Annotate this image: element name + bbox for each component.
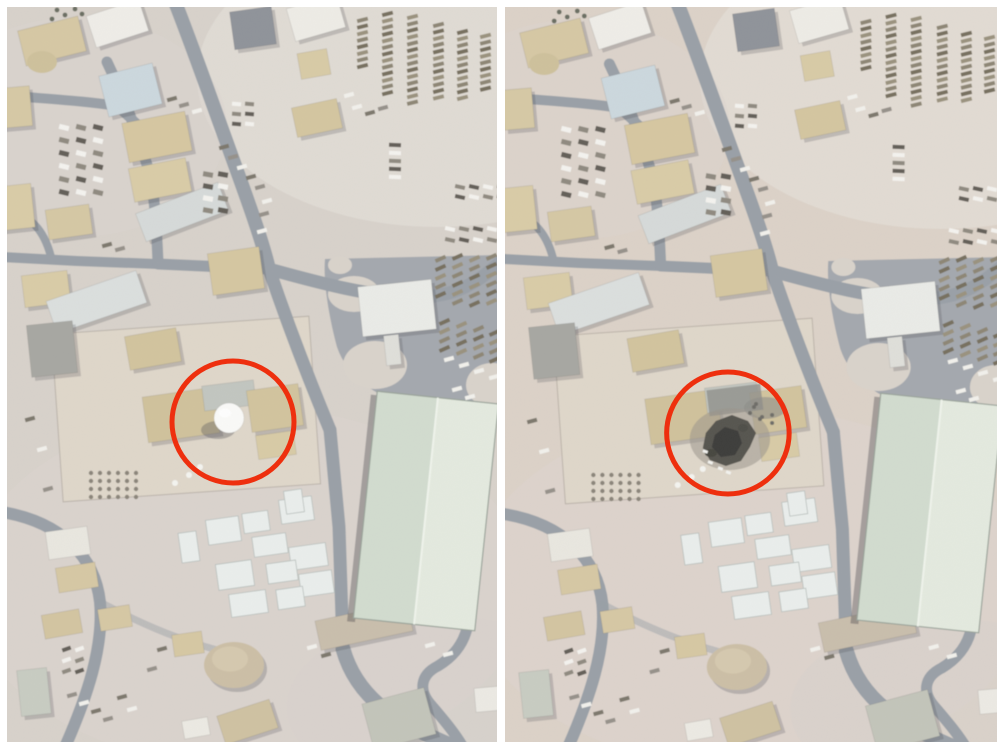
satellite-image-before (7, 7, 497, 742)
satellite-photo-before (7, 7, 497, 742)
satellite-image-after (505, 7, 997, 742)
photo-grain (7, 7, 497, 742)
satellite-photo-after (505, 7, 997, 742)
before-after-comparison (0, 0, 1000, 750)
